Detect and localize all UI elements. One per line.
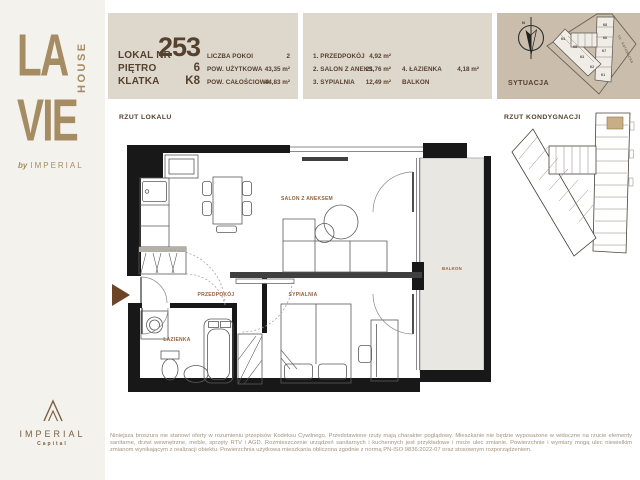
storey-plan [512,113,634,256]
stat-value: 43,35 m² [243,66,290,73]
bathroom-fixtures [141,311,233,383]
entrance-arrow-icon [112,284,130,306]
imperial-sub: Capital [0,441,105,447]
hall-wardrobe [139,247,186,274]
coffee-table [315,224,334,243]
doors [141,172,413,334]
imperial-name: IMPERIAL [0,429,105,439]
lokal-value: 253 [148,32,200,63]
floor-plan: SALON Z ANEKSEM PRZEDPOKÓJ SYPIALNIA ŁAZ… [112,143,491,392]
kitchen-fixtures [140,155,198,247]
bed [281,304,351,383]
brand-panel: LA VIE HOUSE byIMPERIAL IMPERIAL Capital [0,0,105,480]
room-area: 12,49 m² [358,79,391,86]
sliding-door [236,279,294,284]
brochure-page: LA VIE HOUSE byIMPERIAL IMPERIAL Capital… [0,0,640,480]
logo-word-house: HOUSE [76,41,88,93]
sofa [283,219,387,272]
room-area: 4,92 m² [358,53,391,60]
room-row: BALKON [402,79,430,86]
stat-value: 2 [243,53,290,60]
room-area: 21,76 m² [358,66,391,73]
logo-byline: byIMPERIAL [18,161,84,170]
balkon-label: BALKON [442,266,462,271]
room-area: 4,18 m² [443,66,479,73]
logo-word-vie: VIE [17,90,77,150]
room-row: 1. PRZEDPOKÓJ [313,53,365,60]
situation-box: SYTUACJA [497,13,640,99]
przedpokoj-label: PRZEDPOKÓJ [198,290,235,298]
sypialnia-label: SYPIALNIA [289,292,318,298]
bedroom-wardrobe [238,334,262,384]
lazienka-label: ŁAZIENKA [163,337,190,343]
unit-info-box: LOKAL NR PIĘTRO KLATKA 253 6 K8 LICZBA P… [108,13,298,99]
logo-word-la: LA [17,25,67,85]
imperial-m-icon [33,398,73,422]
floor-plan-title: RZUT LOKALU [119,114,172,121]
radiator [302,157,348,161]
storey-plan-title: RZUT KONDYGNACJI [504,114,581,121]
klatka-value: K8 [148,75,200,87]
walls [127,143,491,392]
stat-value: 44,83 m² [243,79,290,86]
imperial-capital-logo: IMPERIAL Capital [0,398,105,447]
disclaimer-text: Niniejsza broszura nie stanowi oferty w … [110,433,632,455]
armchair [324,205,358,239]
situation-title: SYTUACJA [508,80,549,87]
balcony-area [420,158,484,372]
room-row: 4. ŁAZIENKA [402,66,442,73]
salon-label: SALON Z ANEKSEM [281,196,333,202]
pietro-value: 6 [148,62,200,74]
dining-table [203,177,252,233]
highlighted-unit [607,117,623,129]
desk [359,320,399,381]
room-row: 3. SYPIALNIA [313,79,355,86]
desk-chair [359,346,372,363]
room-areas-box: 1. PRZEDPOKÓJ 4,92 m² 2. SALON Z ANEKS. … [303,13,492,99]
